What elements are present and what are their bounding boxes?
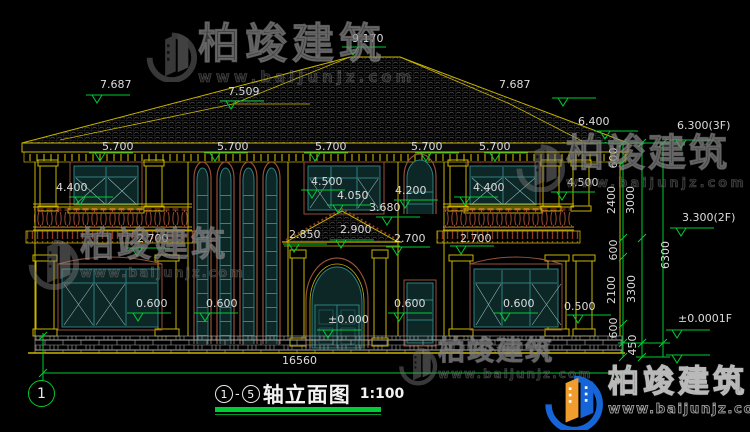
- title-underline: [215, 407, 381, 412]
- title-text: 轴立面图: [263, 379, 351, 409]
- dim-label: 0.600: [503, 298, 535, 310]
- title-scale: 1:100: [360, 386, 405, 402]
- dim-label: 6.300(3F): [677, 120, 730, 132]
- dim-label: 5.700: [217, 141, 249, 153]
- dim-label: 2.700: [394, 233, 426, 245]
- dim-label: ±0.000: [328, 314, 369, 326]
- dim-label: 2.850: [289, 229, 321, 241]
- right-balcony: [437, 204, 580, 243]
- dim-label: 0.500: [564, 301, 596, 313]
- axis-from-bubble: 1: [215, 385, 233, 403]
- left-balcony: [26, 204, 198, 243]
- dim-label: 2.700: [137, 233, 169, 245]
- brand-logo-icon: [536, 366, 608, 430]
- dim-label: 2100: [606, 276, 618, 304]
- brand-logo: 柏竣建筑 www.baijunjz.com: [536, 366, 750, 430]
- center-right-windows: [404, 154, 436, 346]
- level-marker: [666, 355, 710, 363]
- brand-url: www.baijunjz.com: [608, 401, 750, 417]
- level-marker: [670, 228, 714, 236]
- level-marker: [552, 98, 596, 106]
- stone-base: [28, 336, 625, 353]
- dim-label: 2.700: [460, 233, 492, 245]
- dim-label: 5.700: [315, 141, 347, 153]
- dim-label: 4.050: [337, 190, 369, 202]
- dim-label: 0.600: [394, 298, 426, 310]
- dim-label: 4.200: [395, 185, 427, 197]
- left-ground-window: [58, 257, 162, 330]
- drawing-title: 1 - 5 轴立面图 1:100: [214, 379, 404, 409]
- dim-label: 5.700: [102, 141, 134, 153]
- dim-label: 3000: [625, 186, 637, 214]
- elevation-drawing-canvas: 9.1707.6877.5097.6876.4006.300(3F)5.7005…: [0, 0, 750, 432]
- entrance-arch-door: [306, 258, 368, 348]
- title-underline-thin: [215, 414, 381, 415]
- axis-bubble-1: 1: [28, 380, 55, 407]
- level-marker: [450, 246, 494, 254]
- dim-label: 4.500: [311, 176, 343, 188]
- dim-label: 2.900: [340, 224, 372, 236]
- dim-label: 0.600: [206, 298, 238, 310]
- level-marker: [670, 140, 714, 148]
- dim-label: 600: [608, 318, 620, 339]
- dim-label: 6300: [660, 241, 672, 269]
- level-marker: [666, 330, 710, 338]
- dim-label: 7.687: [499, 79, 531, 91]
- dim-label: 16560: [282, 355, 317, 367]
- brand-name: 柏竣建筑: [608, 366, 750, 399]
- dim-label: 5.700: [479, 141, 511, 153]
- dim-label: 600: [608, 148, 620, 169]
- dim-label: 3.680: [369, 202, 401, 214]
- dim-label: 600: [608, 240, 620, 261]
- level-marker: [567, 315, 611, 323]
- level-marker: [342, 47, 386, 55]
- level-marker: [386, 247, 430, 255]
- dim-label: 3.300(2F): [682, 212, 735, 224]
- dim-label: 9.170: [352, 33, 384, 45]
- dim-label: 3300: [626, 275, 638, 303]
- dim-label: 5.700: [411, 141, 443, 153]
- main-roof: [22, 57, 628, 143]
- dim-label: 6.400: [578, 116, 610, 128]
- level-marker: [86, 95, 130, 103]
- dim-label: 450: [627, 335, 639, 356]
- dim-label: 7.509: [228, 86, 260, 98]
- dim-label: 4.500: [567, 177, 599, 189]
- stair-arched-windows: [194, 162, 280, 344]
- dim-label: 4.400: [56, 182, 88, 194]
- dim-label: 7.687: [100, 79, 132, 91]
- dim-label: 4.400: [473, 182, 505, 194]
- dim-label: 2400: [606, 186, 618, 214]
- dim-label: 0.600: [136, 298, 168, 310]
- dim-label: ±0.0001F: [678, 313, 732, 325]
- title-dash: -: [235, 387, 240, 402]
- axis-to-bubble: 5: [242, 385, 260, 403]
